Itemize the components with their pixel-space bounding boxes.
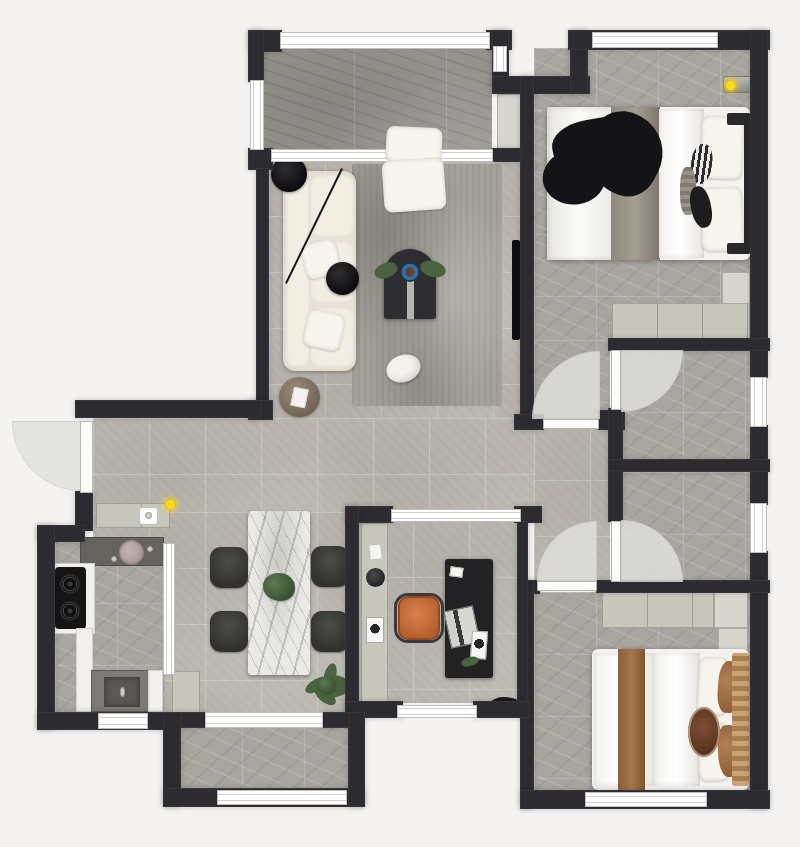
plant-core	[318, 677, 336, 693]
wall	[473, 701, 530, 718]
wardrobe-master[interactable]	[612, 303, 750, 342]
teapot	[366, 568, 385, 587]
runner-brown	[618, 649, 645, 790]
wardrobe-second-end[interactable]	[714, 591, 748, 628]
dining-chair[interactable]	[311, 611, 349, 652]
dining-chair[interactable]	[210, 547, 248, 588]
bowl	[400, 262, 420, 282]
window-kitchen	[98, 713, 148, 729]
magazine	[366, 617, 384, 643]
cooktop[interactable]	[55, 567, 86, 629]
dining-chair[interactable]	[311, 546, 349, 587]
window-balcony-south	[217, 790, 347, 805]
bed-second[interactable]	[592, 649, 749, 790]
light-dot-entry[interactable]	[165, 499, 176, 510]
balcony-north-floor	[262, 47, 492, 151]
wall	[492, 148, 522, 162]
balcony-south-floor	[180, 727, 348, 789]
wall	[520, 76, 534, 426]
desk-chair[interactable]	[394, 593, 444, 643]
headboard	[732, 653, 749, 786]
window-balcony-west	[250, 80, 264, 150]
window-balcony-north	[280, 32, 490, 49]
faucet	[120, 687, 125, 697]
entry-door[interactable]	[80, 421, 93, 493]
knob	[111, 556, 117, 562]
bathroom2-door[interactable]	[611, 521, 621, 582]
entry-cabinet[interactable]	[96, 503, 170, 528]
bed-master[interactable]	[547, 107, 750, 260]
knob	[147, 546, 153, 552]
window-bathroom2	[750, 503, 767, 553]
arc-floor-lamp[interactable]	[271, 156, 363, 298]
window-bathroom1	[750, 377, 767, 427]
window-bedroom-second	[585, 792, 707, 807]
wall	[608, 408, 623, 462]
glass-study-south	[397, 705, 477, 718]
slider-living-balcony	[271, 149, 493, 162]
lamp-shade	[326, 262, 359, 295]
notebook	[449, 566, 463, 578]
bookshelf[interactable]	[361, 523, 388, 712]
wall	[322, 712, 350, 728]
wall	[750, 30, 768, 378]
book	[368, 543, 383, 560]
floor-cushion[interactable]	[383, 127, 445, 211]
wall	[180, 712, 207, 728]
sprig	[460, 655, 480, 668]
round-bag	[688, 707, 720, 757]
wardrobe-second[interactable]	[602, 591, 714, 628]
bedroom-master-door[interactable]	[543, 419, 599, 429]
wall	[517, 521, 528, 713]
kitchen-counter-right[interactable]	[148, 670, 163, 712]
cabinet-living[interactable]	[497, 94, 521, 152]
bathroom1-door[interactable]	[611, 350, 621, 410]
centerpiece-plant	[263, 573, 295, 601]
wall	[256, 168, 269, 402]
wall	[248, 30, 264, 82]
bedroom-second-door[interactable]	[537, 581, 597, 591]
kitchen-counter-top[interactable]	[80, 537, 164, 566]
appliance-dot	[145, 512, 152, 519]
cushion-pillow	[381, 157, 446, 213]
hall-mid-floor	[93, 418, 534, 514]
wall	[608, 470, 623, 522]
wall	[345, 506, 359, 716]
dining-chair[interactable]	[210, 611, 248, 652]
wall	[37, 525, 55, 730]
window-niche-west	[493, 46, 507, 72]
wall	[75, 400, 262, 418]
dining-table[interactable]	[248, 511, 310, 675]
basin	[119, 540, 144, 565]
napkin	[290, 387, 309, 409]
wardrobe-master-column[interactable]	[722, 272, 750, 304]
magazine	[470, 630, 488, 659]
wall	[348, 712, 365, 807]
glass-kitchen-partition	[163, 543, 175, 675]
burner	[60, 574, 80, 594]
window-bedroom-master	[592, 32, 718, 48]
burner	[60, 601, 80, 621]
light-dot-bedroom[interactable]	[725, 80, 736, 91]
arch-coffee-table[interactable]	[384, 249, 436, 319]
entry-door-swing-arc	[12, 421, 82, 491]
side-table[interactable]	[279, 377, 320, 417]
sink-counter[interactable]	[91, 670, 151, 712]
sofa-pillow	[301, 307, 346, 352]
chair-seat	[398, 596, 440, 640]
sideboard[interactable]	[172, 671, 200, 713]
floor-plan-canvas	[0, 0, 800, 847]
glass-study-north	[391, 509, 521, 522]
wall	[608, 459, 770, 472]
desk[interactable]	[445, 559, 493, 678]
slider-dining-balcony	[205, 712, 323, 728]
wall	[248, 148, 273, 170]
tv[interactable]	[512, 240, 520, 340]
